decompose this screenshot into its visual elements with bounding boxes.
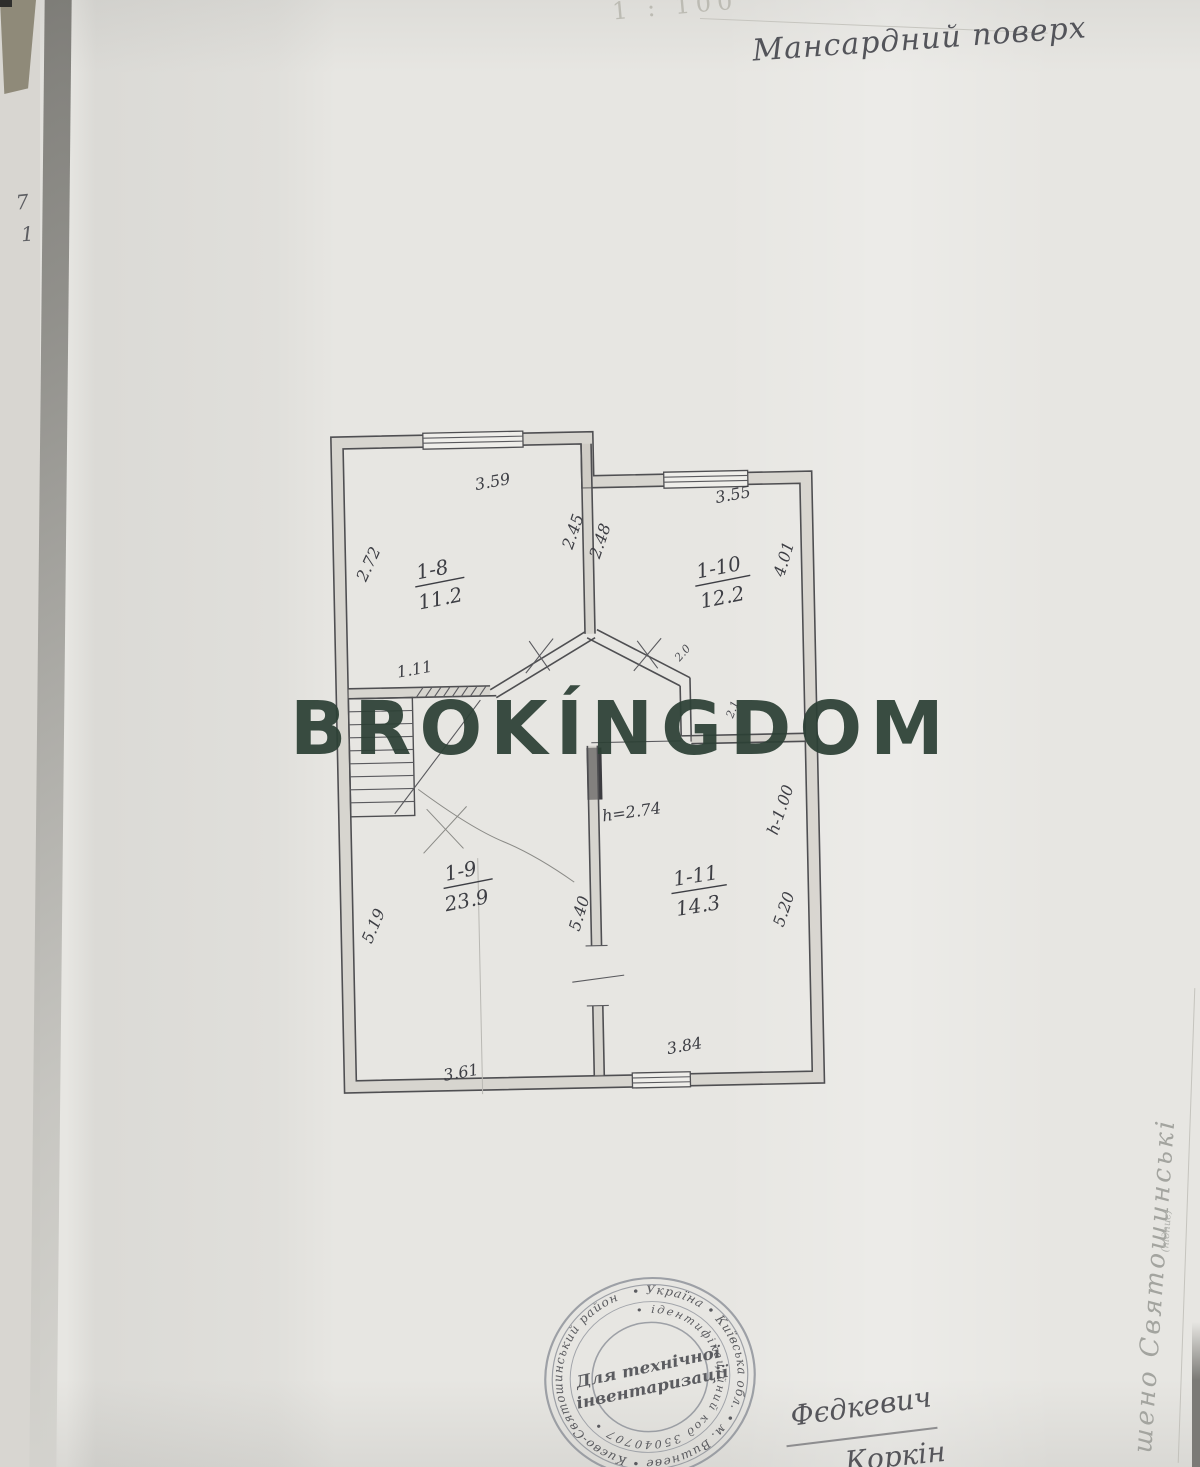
watermark-text: BROKÍNGDOM	[290, 686, 952, 772]
room-1-8-area: 11.2	[416, 582, 464, 614]
dim-left-lower: 5.19	[358, 906, 389, 946]
room-1-11-area: 14.3	[674, 890, 722, 921]
dim-right-lower: 5.20	[769, 889, 798, 929]
dim-height-hall: h=2.74	[601, 798, 662, 825]
room-1-9-id: 1-9	[442, 856, 479, 886]
room-1-9-area: 23.9	[441, 884, 491, 916]
round-stamp: • Україна • Київська обл. • м. Вишневе •…	[500, 1244, 799, 1467]
edge-mark-a: 7	[15, 189, 30, 214]
room-label-1-9: 1-9 23.9	[436, 853, 498, 916]
floor-plan-drawing: 1-8 11.2 1-10 12.2 1-9 23.9 1-11 14.3 3.…	[323, 421, 838, 1131]
door-tick-left	[525, 639, 554, 674]
signature-surname: Фєдкевич	[788, 1380, 933, 1432]
page-corner-mark	[0, 0, 12, 7]
ceiling-break-line	[418, 786, 574, 885]
dim-center: 5.40	[565, 894, 593, 934]
room-label-1-11: 1-11 14.3	[667, 859, 731, 921]
signature-surname-2: Коркін	[844, 1435, 947, 1467]
floor-title-handwritten: Мансардний поверх	[751, 10, 1088, 68]
room-1-10-area: 12.2	[698, 581, 746, 613]
edge-mark-b: 1	[20, 222, 34, 247]
dim-stair: 1.11	[395, 657, 433, 682]
window-top-left	[423, 431, 523, 449]
door-tick-right	[633, 638, 662, 671]
room-label-1-8: 1-8 11.2	[410, 552, 470, 615]
dim-left-upper: 2.72	[352, 544, 385, 585]
room-label-1-10: 1-10 12.2	[690, 550, 755, 614]
door-opening	[572, 945, 625, 1006]
scale-note: 1 : 100	[611, 0, 739, 25]
dim-right-upper: 4.01	[769, 539, 798, 580]
page-corner-sliver	[1192, 1322, 1200, 1467]
margin-note-vertical: шено Святошинські	[1128, 1117, 1181, 1454]
dim-bottom-right: 3.84	[665, 1033, 703, 1058]
room-1-8-id: 1-8	[414, 554, 450, 584]
pencil-cross	[423, 806, 468, 853]
scanned-floor-plan-page: 7 1 1 : 100 Мансардний поверх	[0, 0, 1200, 1467]
dim-height-right: h-1.00	[763, 782, 798, 837]
dim-top-left: 3.59	[473, 469, 511, 494]
window-bottom	[632, 1072, 690, 1088]
dim-hall-a: 2.0	[671, 642, 693, 664]
